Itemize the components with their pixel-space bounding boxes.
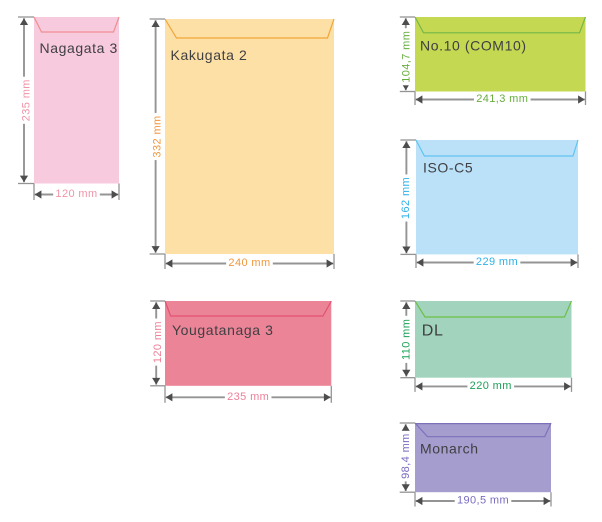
svg-text:235 mm: 235 mm [21, 79, 33, 121]
svg-text:240 mm: 240 mm [228, 257, 270, 269]
svg-text:190,5 mm: 190,5 mm [457, 495, 509, 507]
svg-text:120 mm: 120 mm [152, 321, 164, 363]
svg-text:98,4 mm: 98,4 mm [400, 433, 412, 479]
svg-text:162 mm: 162 mm [400, 177, 412, 219]
svg-text:235 mm: 235 mm [227, 391, 269, 403]
svg-text:110 mm: 110 mm [400, 319, 412, 360]
svg-text:Nagagata 3: Nagagata 3 [40, 40, 118, 56]
svg-text:332 mm: 332 mm [151, 115, 163, 157]
svg-text:Kakugata 2: Kakugata 2 [171, 47, 248, 63]
svg-text:229 mm: 229 mm [476, 256, 518, 268]
svg-text:104,7 mm: 104,7 mm [400, 31, 412, 83]
svg-text:DL: DL [422, 323, 444, 340]
svg-text:Monarch: Monarch [420, 441, 479, 457]
svg-text:241,3 mm: 241,3 mm [476, 93, 528, 105]
svg-text:ISO-C5: ISO-C5 [423, 160, 473, 176]
svg-text:220 mm: 220 mm [470, 380, 512, 392]
svg-text:120 mm: 120 mm [55, 188, 97, 200]
svg-text:Yougatanaga 3: Yougatanaga 3 [172, 322, 274, 338]
svg-text:No.10 (COM10): No.10 (COM10) [420, 38, 527, 54]
